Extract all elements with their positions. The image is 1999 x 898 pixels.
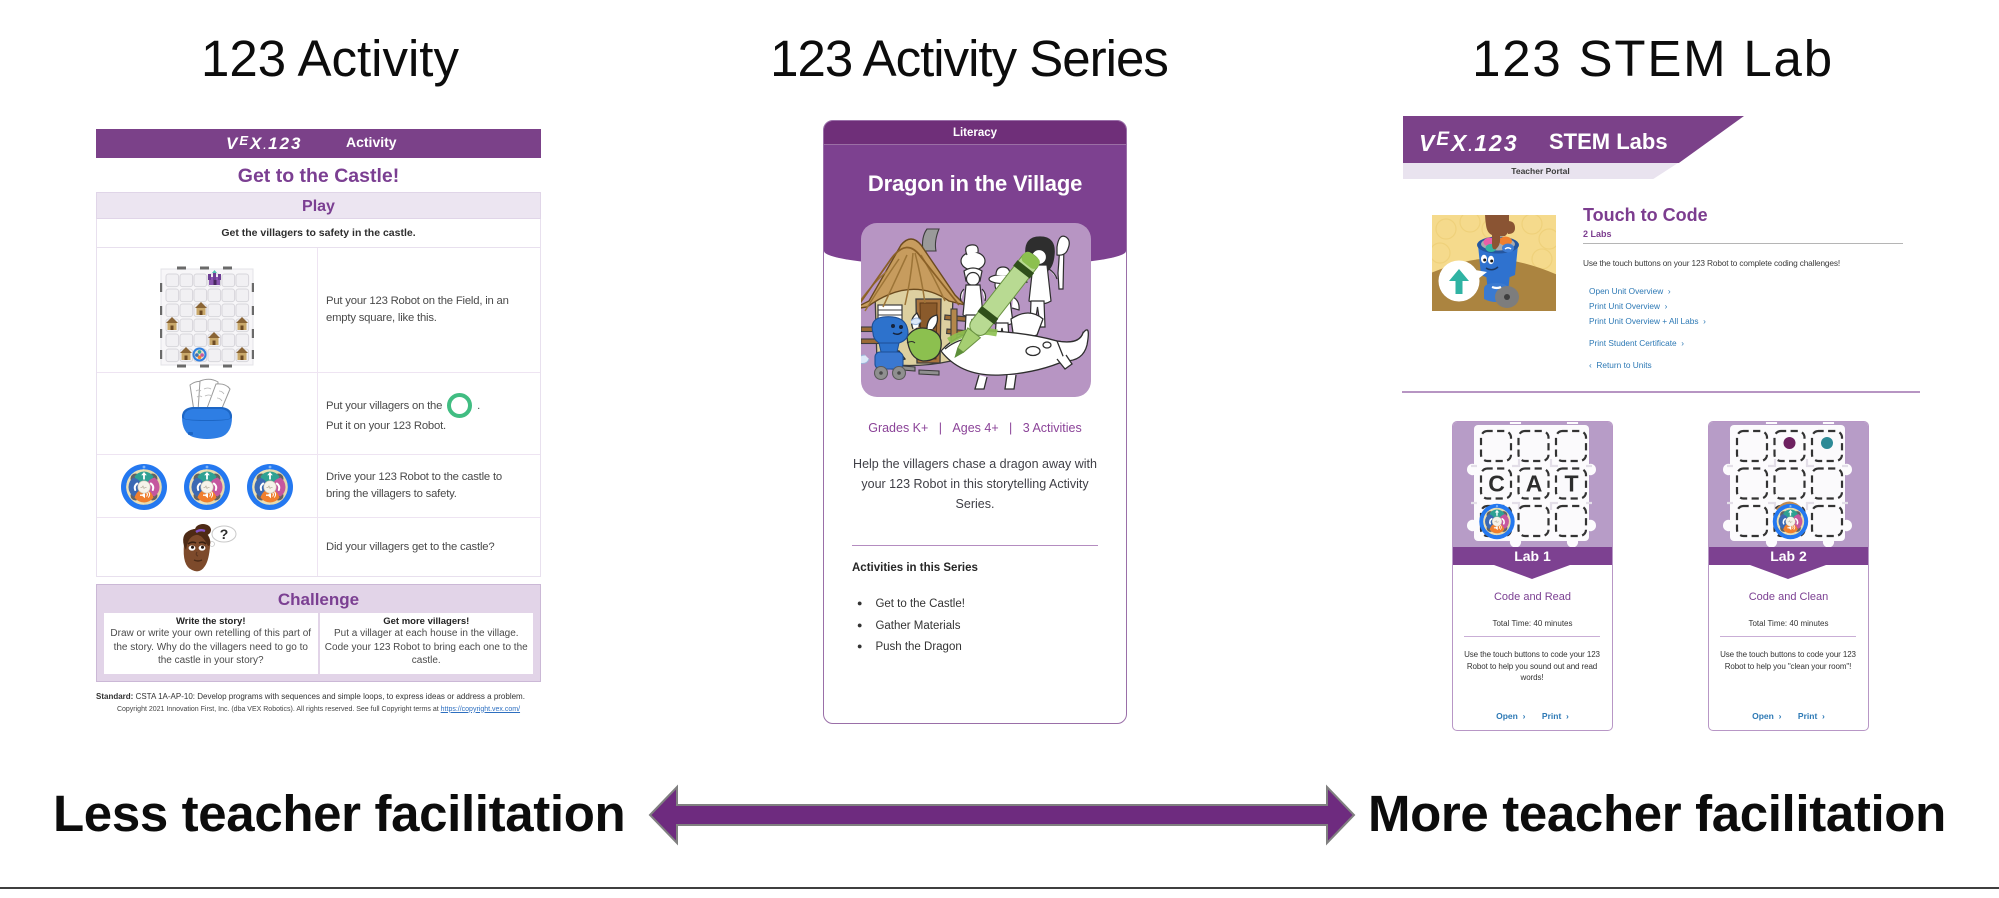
- svg-text:A: A: [1526, 471, 1543, 497]
- svg-text:?: ?: [220, 526, 229, 542]
- svg-text:T: T: [1564, 471, 1578, 497]
- svg-text:C: C: [1488, 471, 1505, 497]
